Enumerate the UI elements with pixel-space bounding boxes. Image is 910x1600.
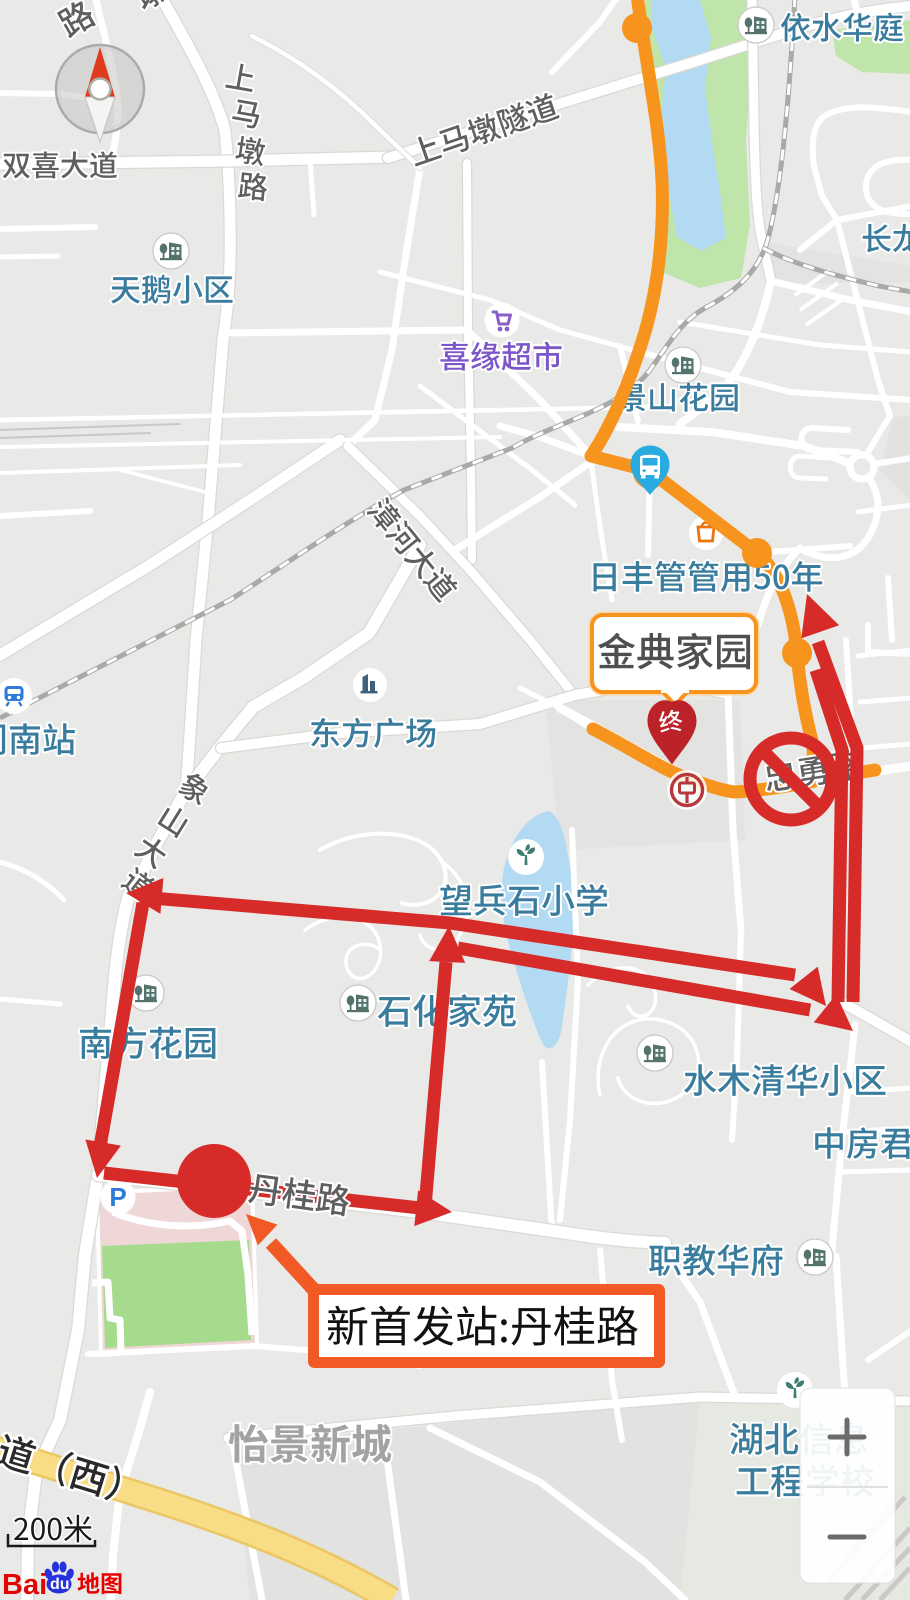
svg-text:du: du xyxy=(50,1576,70,1593)
svg-text:P: P xyxy=(109,1182,126,1212)
svg-text:Bai: Bai xyxy=(2,1569,47,1600)
